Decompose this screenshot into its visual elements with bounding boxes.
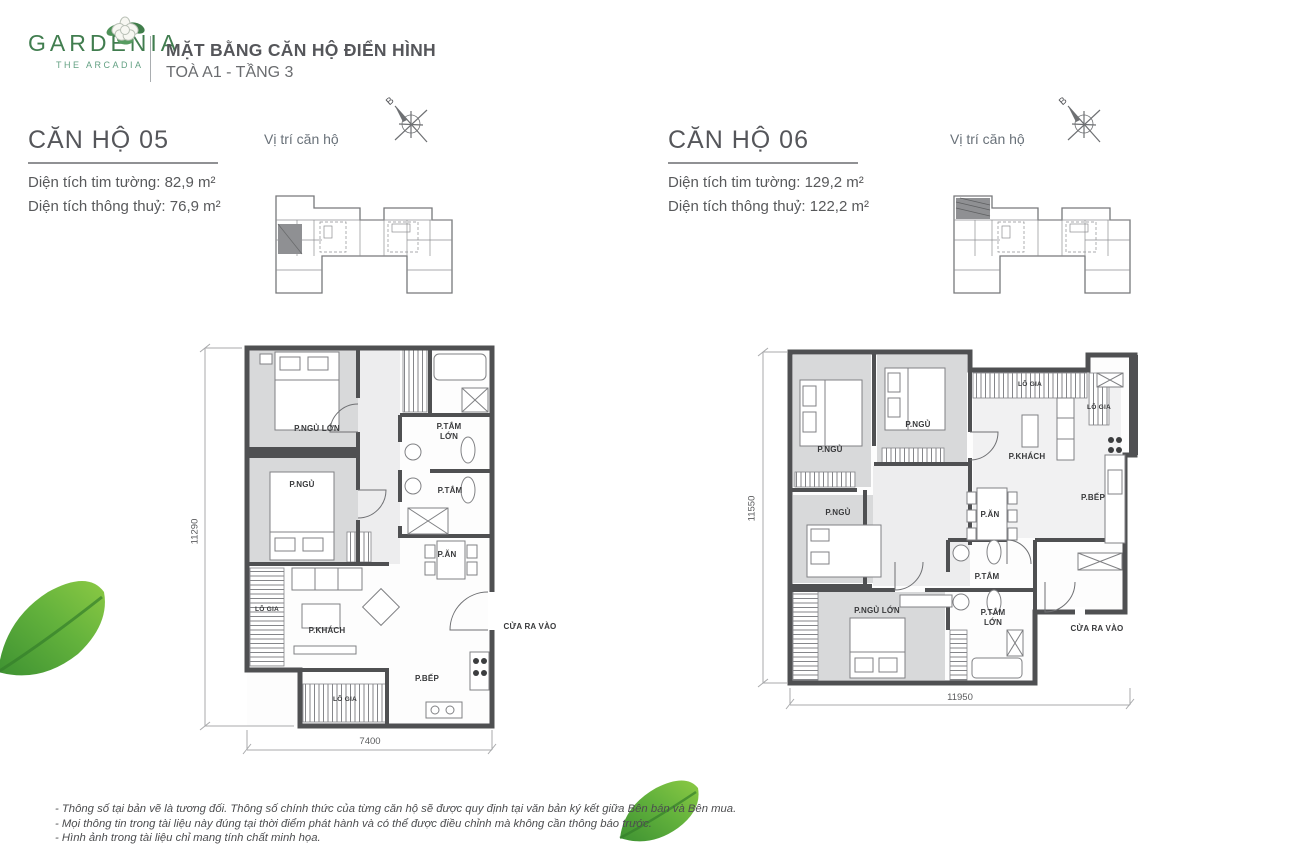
room-label-kitchen: P.BẾP <box>404 674 450 684</box>
room-label-dining: P.ĂN <box>965 510 1015 520</box>
brand-logo-subtitle: THE ARCADIA <box>56 60 144 70</box>
floor-plan-unit05: P.NGỦ LỚN P.TẮM LỚN P.NGỦ P.TẮM P.ĂN LÔ … <box>182 340 522 760</box>
room-label-dining: P.ĂN <box>425 550 469 560</box>
unit-06-position-label: Vị trí căn hộ <box>950 131 1025 147</box>
unit-06-net-area: Diện tích thông thuỷ: 122,2 m² <box>668 198 869 215</box>
floor-plan-unit06: P.NGỦ P.NGỦ LÔ GIA LÔ GIA P.KHÁCH P.NGỦ … <box>745 340 1165 725</box>
unit-05-gross-area: Diện tích tim tường: 82,9 m² <box>28 174 215 191</box>
gross-area-label: Diện tích tim tường: <box>668 174 800 191</box>
unit-06-title: CĂN HỘ 06 <box>668 126 809 155</box>
building-position-map-unit06 <box>940 158 1140 298</box>
footnote-line: - Mọi thông tin trong tài liệu này đúng … <box>55 817 736 832</box>
dimension-height: 11290 <box>190 507 201 557</box>
footnote-line: - Thông số tại bản vẽ là tương đối. Thôn… <box>55 802 736 817</box>
floor-plan-06-drawing <box>745 340 1165 725</box>
net-area-value: 76,9 m² <box>170 198 221 215</box>
header-divider <box>150 36 151 82</box>
gardenia-flower-icon <box>103 14 147 48</box>
page-subtitle: TOÀ A1 - TẦNG 3 <box>166 64 293 82</box>
building-position-map-unit05 <box>262 158 462 298</box>
dimension-width: 11950 <box>930 692 990 703</box>
room-label-master-bath: P.TẮM LỚN <box>972 608 1014 627</box>
room-label-master-bedroom: P.NGỦ LỚN <box>282 424 352 434</box>
net-area-label: Diện tích thông thuỷ: <box>668 198 806 215</box>
unit-05-net-area: Diện tích thông thuỷ: 76,9 m² <box>28 198 221 215</box>
compass-icon: B <box>1058 98 1108 150</box>
highlighted-unit-06 <box>956 198 990 219</box>
room-label-balcony-right: LÔ GIA <box>1079 404 1119 412</box>
compass-icon: B <box>385 98 435 150</box>
gross-area-value: 82,9 m² <box>165 174 216 191</box>
unit-06-gross-area: Diện tích tim tường: 129,2 m² <box>668 174 864 191</box>
unit-05-position-label: Vị trí căn hộ <box>264 131 339 147</box>
room-label-bath: P.TẮM <box>962 572 1012 582</box>
room-label-kitchen: P.BẾP <box>1068 493 1118 503</box>
floorplan-document: GARDENIA THE ARCADIA MẶT BẰNG CĂN HỘ ĐIỂ… <box>0 0 1304 850</box>
room-label-bath: P.TẮM <box>428 486 472 496</box>
room-label-master-bedroom: P.NGỦ LỚN <box>842 606 912 616</box>
room-label-bedroom1: P.NGỦ <box>800 445 860 455</box>
room-label-balcony-bottom: LÔ GIA <box>322 696 368 704</box>
unit-05-title: CĂN HỘ 05 <box>28 126 169 155</box>
net-area-label: Diện tích thông thuỷ: <box>28 198 166 215</box>
gross-area-value: 129,2 m² <box>805 174 864 191</box>
net-area-value: 122,2 m² <box>810 198 869 215</box>
footnotes: - Thông số tại bản vẽ là tương đối. Thôn… <box>55 802 736 846</box>
room-label-living: P.KHÁCH <box>992 452 1062 462</box>
room-label-entrance: CỬA RA VÀO <box>1061 624 1133 634</box>
room-label-living: P.KHÁCH <box>292 626 362 636</box>
unit-06-rule <box>668 162 858 164</box>
room-label-bedroom3: P.NGỦ <box>808 508 868 518</box>
footnote-line: - Hình ảnh trong tài liệu chỉ mang tính … <box>55 831 736 846</box>
room-label-balcony-side: LÔ GIA <box>250 606 284 614</box>
room-label-bedroom2: P.NGỦ <box>888 420 948 430</box>
dimension-height: 11550 <box>747 484 758 534</box>
gross-area-label: Diện tích tim tường: <box>28 174 160 191</box>
room-label-entrance: CỬA RA VÀO <box>494 622 566 632</box>
room-label-bedroom: P.NGỦ <box>272 480 332 490</box>
dimension-width: 7400 <box>340 736 400 747</box>
leaf-decoration-left <box>0 572 120 692</box>
page-title: MẶT BẰNG CĂN HỘ ĐIỂN HÌNH <box>166 40 436 61</box>
room-label-master-bath: P.TẮM LỚN <box>428 422 470 441</box>
unit-05-rule <box>28 162 218 164</box>
room-label-balcony-top: LÔ GIA <box>1000 381 1060 389</box>
